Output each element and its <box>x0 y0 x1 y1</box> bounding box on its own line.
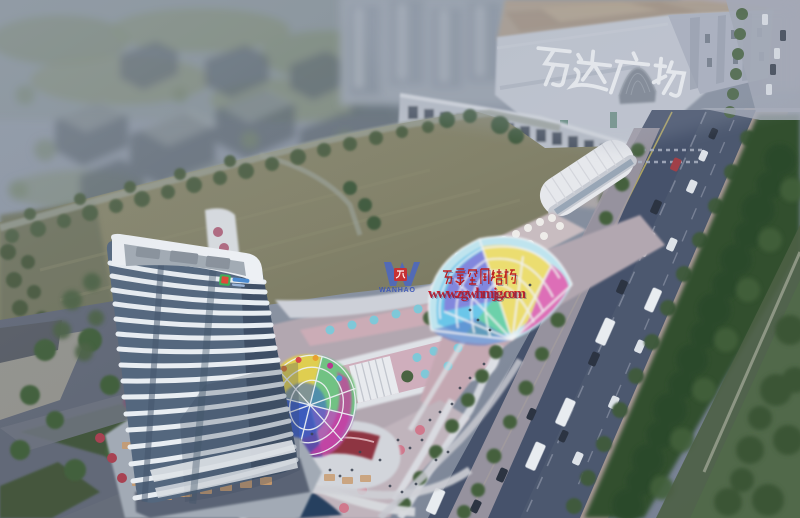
svg-text:www.zgwhmjg.com: www.zgwhmjg.com <box>429 287 528 303</box>
svg-text:WANHAO: WANHAO <box>379 287 416 294</box>
